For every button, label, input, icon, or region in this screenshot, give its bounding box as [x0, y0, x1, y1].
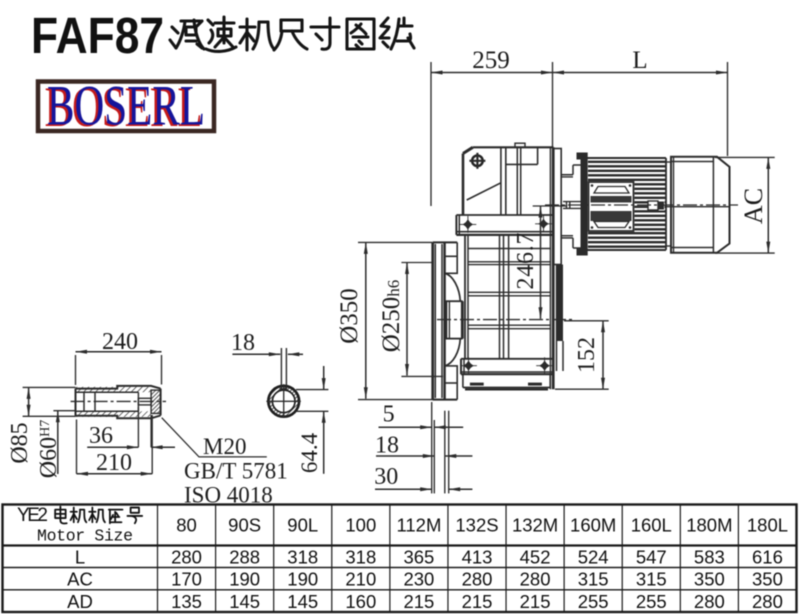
svg-text:280: 280: [694, 591, 725, 612]
svg-text:318: 318: [345, 547, 376, 568]
svg-text:145: 145: [229, 591, 260, 612]
svg-text:160: 160: [345, 591, 376, 612]
svg-text:583: 583: [694, 547, 725, 568]
svg-text:AD: AD: [67, 591, 93, 612]
svg-text:AC: AC: [67, 569, 93, 590]
svg-text:FAF87: FAF87: [31, 7, 164, 64]
svg-text:288: 288: [229, 547, 260, 568]
svg-text:255: 255: [636, 591, 667, 612]
svg-text:280: 280: [462, 569, 493, 590]
svg-text:Ø250h6: Ø250h6: [378, 280, 405, 353]
svg-text:215: 215: [462, 591, 493, 612]
svg-text:170: 170: [171, 569, 202, 590]
svg-text:18: 18: [231, 330, 255, 356]
svg-text:547: 547: [636, 547, 667, 568]
svg-text:180M: 180M: [686, 515, 732, 536]
svg-text:255: 255: [578, 591, 609, 612]
svg-text:365: 365: [403, 547, 434, 568]
svg-text:80: 80: [176, 515, 197, 536]
svg-text:280: 280: [752, 591, 783, 612]
svg-text:315: 315: [636, 569, 667, 590]
svg-text:350: 350: [752, 569, 783, 590]
svg-text:160M: 160M: [570, 515, 616, 536]
svg-text:240: 240: [102, 329, 138, 355]
svg-text:AC: AC: [739, 188, 768, 224]
svg-text:30: 30: [374, 464, 398, 490]
svg-text:452: 452: [520, 547, 551, 568]
svg-text:BOSERL: BOSERL: [47, 75, 205, 138]
svg-text:246.7: 246.7: [513, 233, 539, 290]
svg-text:YE2: YE2: [17, 505, 48, 526]
svg-text:315: 315: [578, 569, 609, 590]
svg-text:L: L: [75, 547, 85, 568]
svg-text:M20: M20: [203, 434, 246, 459]
svg-text:132M: 132M: [512, 515, 558, 536]
svg-text:318: 318: [287, 547, 318, 568]
svg-text:160L: 160L: [631, 515, 672, 536]
svg-text:132S: 132S: [455, 515, 498, 536]
svg-text:215: 215: [403, 591, 434, 612]
svg-text:112M: 112M: [396, 515, 441, 536]
svg-text:Ø85: Ø85: [7, 422, 33, 463]
svg-text:350: 350: [694, 569, 725, 590]
svg-text:5: 5: [383, 402, 395, 428]
svg-text:280: 280: [520, 569, 551, 590]
svg-text:230: 230: [403, 569, 434, 590]
svg-text:190: 190: [287, 569, 318, 590]
svg-text:210: 210: [96, 450, 132, 476]
svg-text:36: 36: [89, 423, 113, 449]
svg-text:145: 145: [287, 591, 318, 612]
svg-text:413: 413: [462, 547, 493, 568]
svg-text:135: 135: [171, 591, 202, 612]
svg-text:18: 18: [375, 432, 399, 458]
svg-text:L: L: [632, 47, 647, 74]
svg-text:100: 100: [345, 515, 376, 536]
svg-text:64.4: 64.4: [297, 432, 322, 473]
svg-text:152: 152: [574, 337, 600, 373]
svg-text:Ø350: Ø350: [336, 288, 363, 344]
svg-text:180L: 180L: [747, 515, 788, 536]
svg-text:259: 259: [472, 47, 510, 74]
svg-text:GB/T 5781: GB/T 5781: [184, 459, 288, 484]
svg-text:280: 280: [171, 547, 202, 568]
svg-text:616: 616: [752, 547, 783, 568]
svg-text:190: 190: [229, 569, 260, 590]
svg-text:524: 524: [578, 547, 609, 568]
svg-text:90L: 90L: [287, 515, 318, 536]
svg-text:215: 215: [520, 591, 551, 612]
svg-text:90S: 90S: [228, 515, 261, 536]
svg-text:Motor Size: Motor Size: [37, 527, 133, 546]
svg-text:210: 210: [345, 569, 376, 590]
